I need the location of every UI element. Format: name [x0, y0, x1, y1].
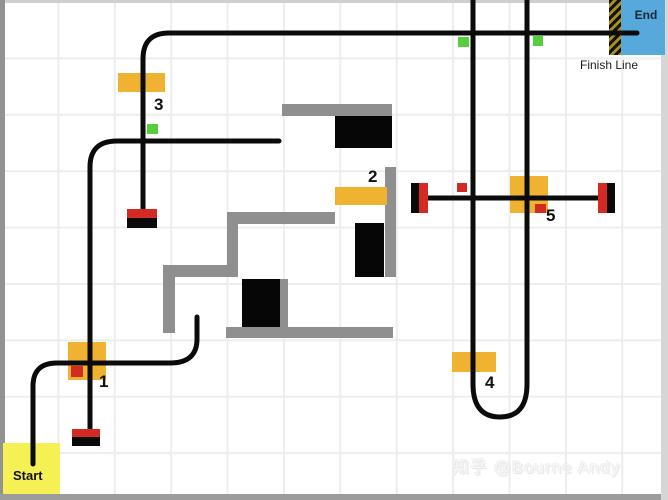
course-drawing: 12345 [0, 0, 668, 500]
course-map: 12345 Start End Finish Line 知乎 @Bourne A… [0, 0, 668, 500]
wall-block-2 [385, 167, 396, 277]
marker-start-black [72, 437, 100, 446]
red-sensor-square-1 [71, 366, 83, 377]
wall-block-6 [163, 277, 175, 333]
red-sensor-square-3 [535, 204, 546, 213]
marker-start-red [72, 429, 100, 437]
path-start-curve [33, 317, 197, 464]
wall-block-3 [227, 212, 335, 224]
red-sensor-square-2 [457, 183, 467, 192]
green-sensor-square-1 [147, 124, 158, 134]
obstacle-block-1 [335, 116, 392, 148]
checkpoint-box-2 [335, 187, 387, 205]
end-label: End [631, 8, 661, 22]
obstacle-block-3 [242, 279, 280, 327]
checkpoint-label-5: 5 [546, 206, 555, 225]
marker-cp5-left-black [411, 183, 419, 213]
marker-cp5-right-red [598, 183, 607, 213]
watermark-text: 知乎 @Bourne Andy [452, 453, 620, 478]
obstacle-block-2 [355, 223, 384, 277]
finish-line-label: Finish Line [580, 58, 638, 72]
green-sensor-square-3 [533, 36, 543, 46]
checkpoint-label-4: 4 [485, 373, 495, 392]
start-label: Start [13, 468, 43, 483]
marker-cp5-left-red [419, 183, 428, 213]
wall-block-1 [282, 104, 392, 116]
checkpoint-label-2: 2 [368, 167, 377, 186]
marker-cp3-red [127, 209, 157, 218]
marker-cp5-right-black [607, 183, 615, 213]
marker-cp3-black [127, 218, 157, 228]
checkpoint-label-3: 3 [154, 95, 163, 114]
wall-block-8 [226, 327, 393, 338]
checkpoint-label-1: 1 [99, 372, 108, 391]
green-sensor-square-2 [458, 37, 469, 47]
wall-block-7 [280, 279, 288, 327]
wall-block-5 [163, 265, 238, 277]
